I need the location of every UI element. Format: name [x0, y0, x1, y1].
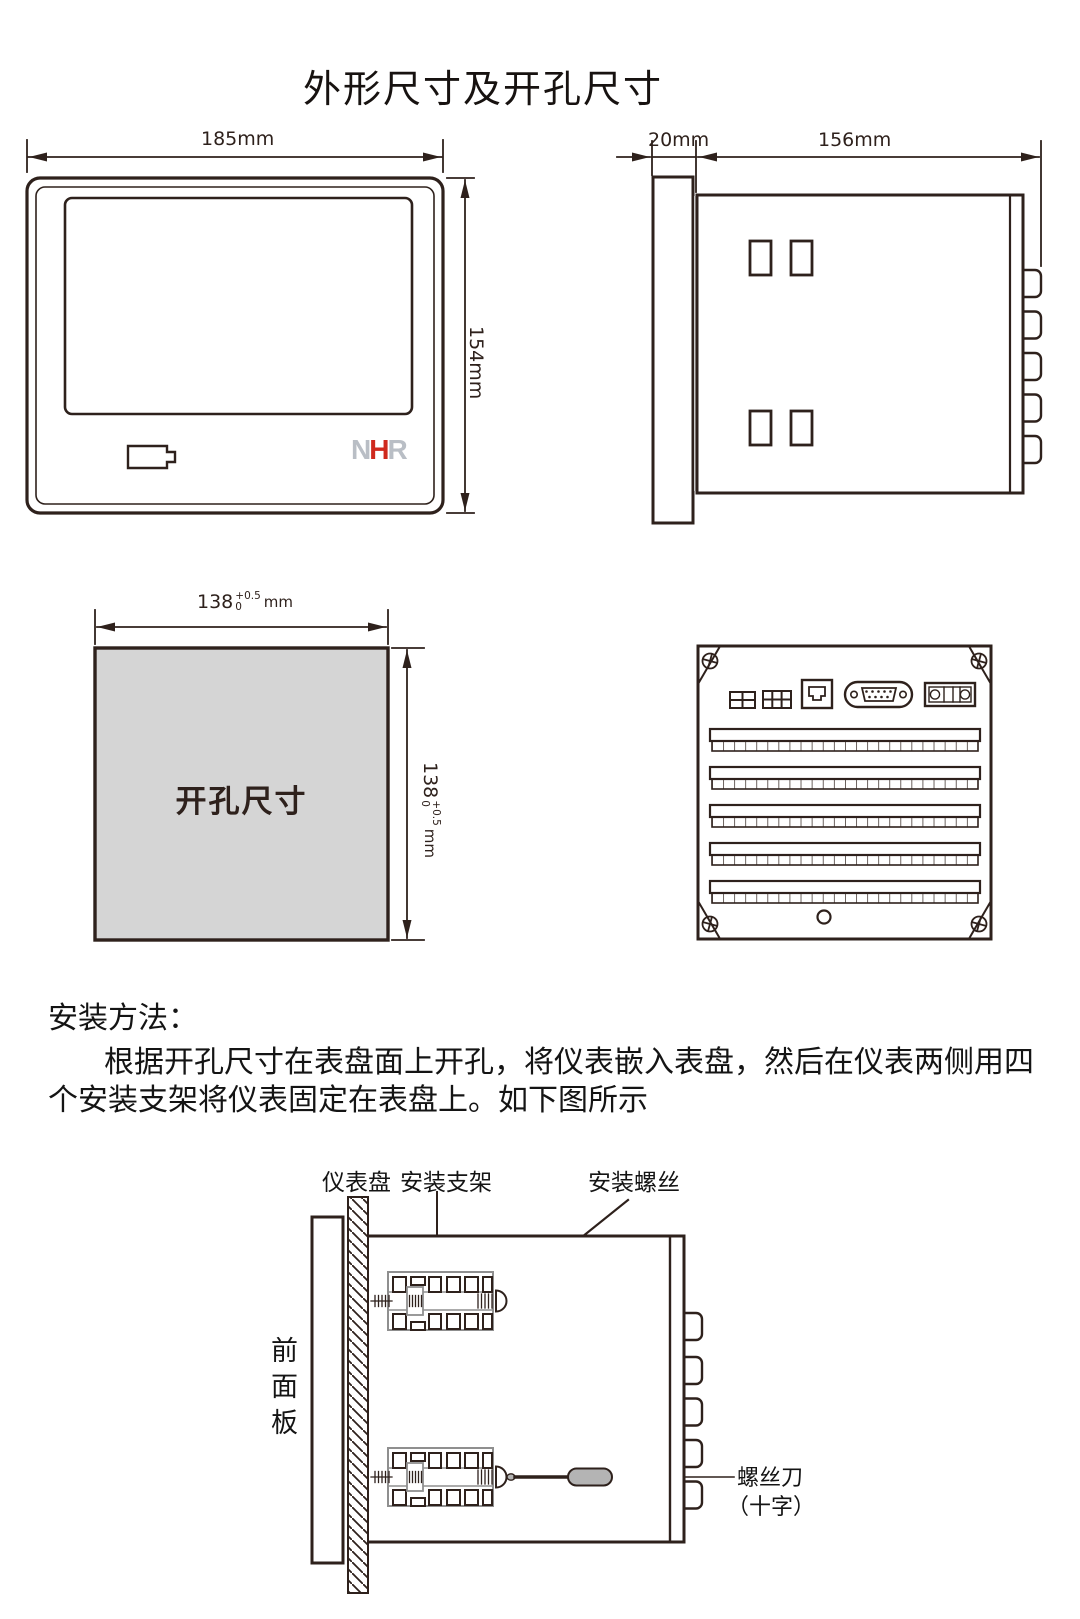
side-bezel-depth-label: 20mm [648, 130, 698, 151]
screwdriver-handle [568, 1469, 612, 1486]
terminal-block-2pin [730, 692, 755, 708]
label-mounting-screw: 安装螺丝 [588, 1163, 680, 1197]
side-dimensions [617, 141, 1041, 266]
side-body [697, 195, 1023, 493]
logo-letter-n: N [351, 434, 369, 465]
terminal-block-3pin [763, 691, 791, 708]
cutout-width-dimension [95, 610, 388, 644]
install-terminal-bumps [684, 1313, 702, 1509]
front-height-label: 154mm [465, 326, 486, 399]
label-instrument-panel: 仪表盘 [322, 1163, 391, 1197]
side-terminal-bumps [1023, 270, 1041, 463]
mounting-bracket [371, 1272, 507, 1330]
side-device-outline [653, 177, 1041, 523]
label-screwdriver-type: （十字） [727, 1489, 815, 1521]
manual-page: { "page": { "title": "外形尺寸及开孔尺寸" }, "col… [0, 0, 1080, 1619]
rear-hole [818, 911, 831, 924]
power-terminal [925, 683, 975, 706]
usb-slot [128, 446, 175, 468]
side-vent-holes [750, 241, 812, 445]
cutout-height-dim-label: 138 +0.50 mm [419, 762, 441, 858]
front-view-drawing [0, 120, 500, 520]
side-body-depth-label: 156mm [818, 130, 886, 151]
ethernet-port [802, 680, 832, 708]
label-front-panel: 前面板 [263, 1336, 302, 1444]
side-view-drawing [600, 110, 1070, 530]
front-screen [65, 198, 412, 414]
install-panel-wall [348, 1197, 368, 1593]
page-title: 外形尺寸及开孔尺寸 [0, 58, 966, 113]
cutout-title: 开孔尺寸 [95, 776, 388, 821]
install-front-bezel [312, 1217, 343, 1563]
label-mounting-bracket: 安装支架 [400, 1163, 492, 1197]
side-front-bezel [653, 177, 693, 523]
installation-drawing [240, 1160, 840, 1619]
brand-logo: NHR [351, 434, 406, 466]
install-heading: 安装方法： [48, 993, 198, 1037]
db9-serial-port [845, 682, 912, 707]
front-width-label: 185mm [201, 129, 269, 150]
rear-terminal-strips [710, 729, 980, 903]
install-paragraph-line2: 个安装支架将仪表固定在表盘上。如下图所示 [48, 1075, 648, 1119]
label-screwdriver: 螺丝刀 [737, 1460, 803, 1492]
cutout-drawing [60, 560, 490, 955]
cutout-width-dim-label: 138 +0.50 mm [197, 591, 293, 613]
logo-letter-r: R [387, 434, 405, 465]
logo-letter-h: H [369, 434, 387, 465]
rear-view-drawing [650, 600, 1010, 955]
